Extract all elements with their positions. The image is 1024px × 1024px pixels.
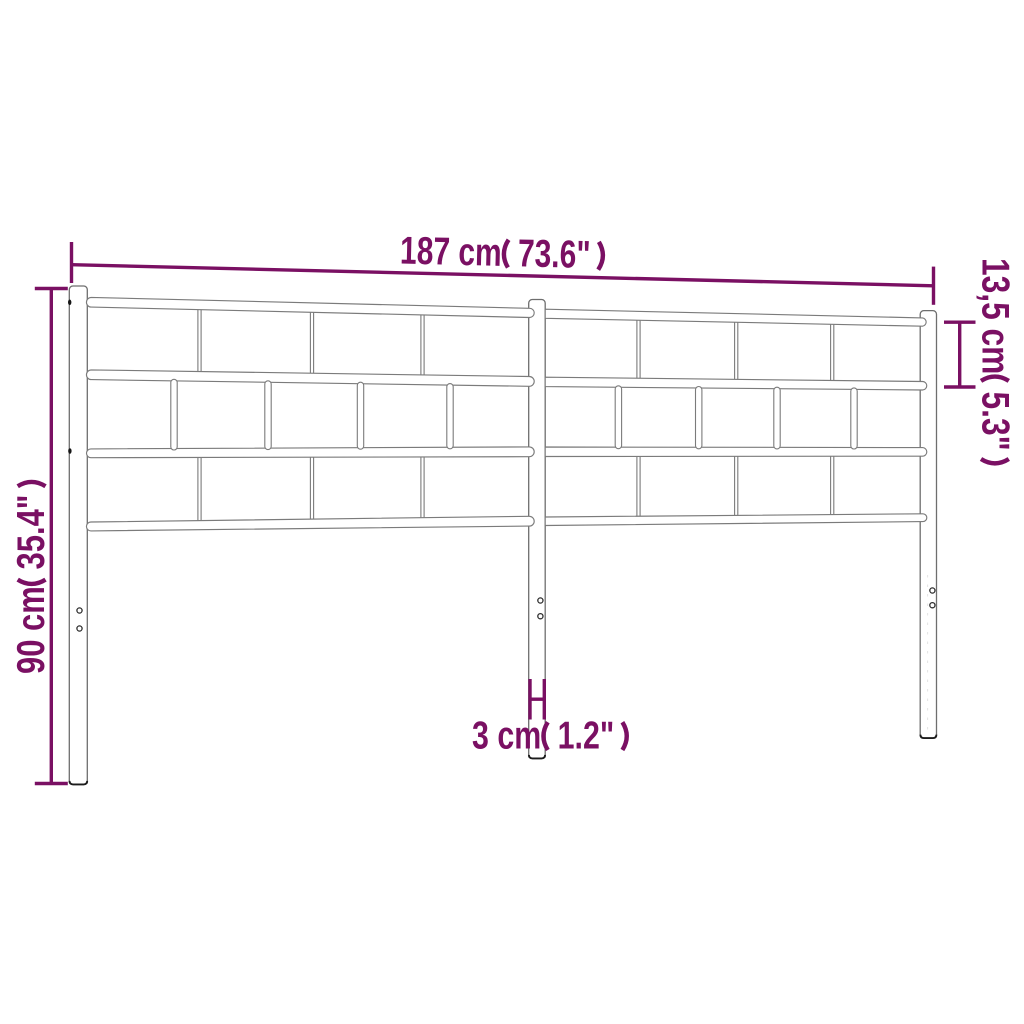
svg-text:13,5 cm( 5.3" ): 13,5 cm( 5.3" ) [974,258,1017,466]
svg-text:3 cm( 1.2" ): 3 cm( 1.2" ) [472,715,629,758]
svg-text:90 cm( 35.4" ): 90 cm( 35.4" ) [10,480,53,675]
